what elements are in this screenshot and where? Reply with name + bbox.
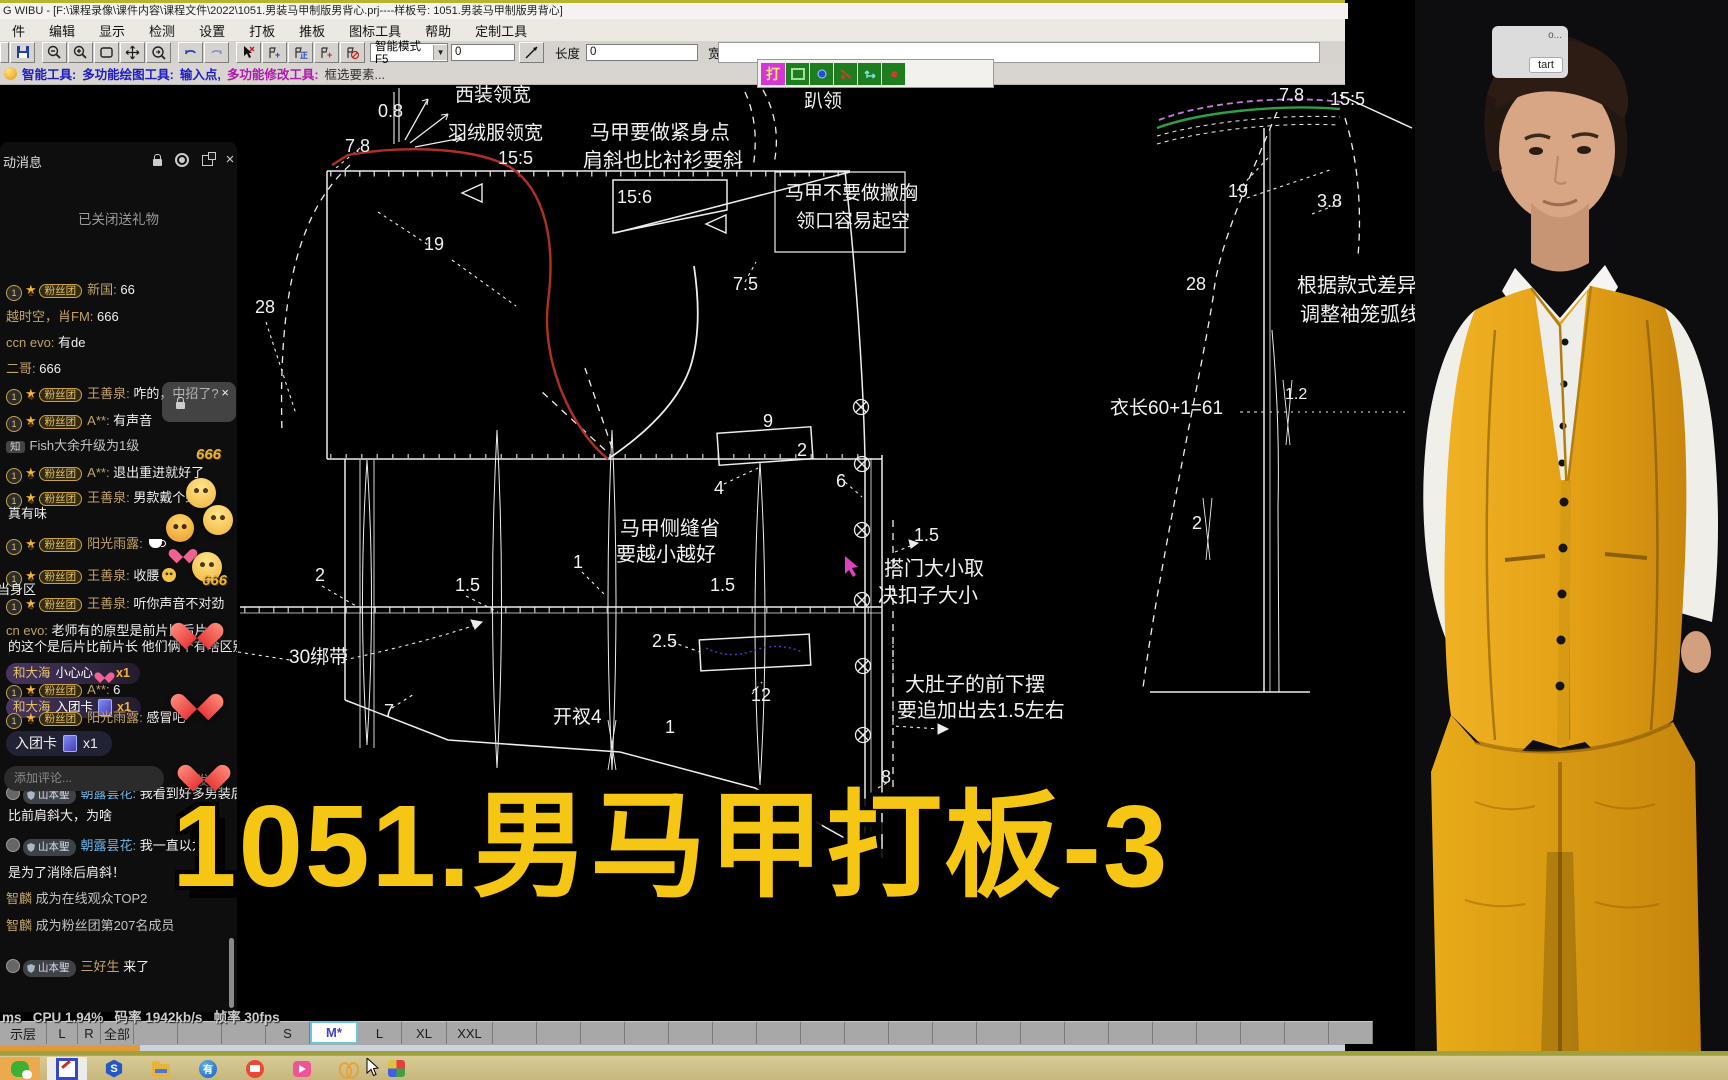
- chat-lock-popup[interactable]: ×: [162, 382, 236, 422]
- size-cell-empty[interactable]: [493, 1021, 537, 1044]
- pattern-annotation: 28: [255, 297, 275, 317]
- pattern-annotation: 1.2: [1285, 386, 1307, 403]
- floating-reaction: 666: [202, 572, 227, 589]
- pattern-annotation: 1.5: [455, 575, 480, 595]
- menu-item-9[interactable]: 定制工具: [463, 21, 539, 40]
- chevron-down-icon[interactable]: ▼: [433, 45, 447, 60]
- pattern-solid-lines: [240, 88, 1412, 858]
- buttonhole-marker: [855, 593, 870, 608]
- pattern-annotation: 9: [763, 411, 773, 431]
- menu-item-3[interactable]: 检测: [137, 21, 187, 40]
- pattern-annotation: 羽绒服领宽: [448, 122, 543, 144]
- model-viewport: [1355, 0, 1728, 1055]
- correct-tool[interactable]: 正: [288, 42, 313, 63]
- chat-header-title: 动消息: [3, 152, 42, 171]
- save-button[interactable]: [10, 42, 35, 63]
- gear-icon[interactable]: [174, 152, 190, 168]
- pattern-annotation: 6: [836, 471, 846, 491]
- pinwheel-icon[interactable]: [376, 1057, 416, 1080]
- pattern-annotation: 要越小越好: [616, 543, 716, 566]
- chat-message-continuation: 真有味: [8, 505, 47, 522]
- redo-button[interactable]: [204, 42, 229, 63]
- pattern-annotation: 马甲侧缝省: [620, 517, 720, 540]
- pattern-annotation: 19: [424, 234, 444, 254]
- floating-mini-toolbar: 打: [757, 59, 994, 88]
- buttonhole-marker: [856, 659, 871, 674]
- floating-reaction: [203, 505, 233, 535]
- buttonhole-marker: [854, 400, 869, 415]
- svg-text:+: +: [275, 50, 280, 60]
- size-cell-L[interactable]: L: [358, 1021, 402, 1044]
- close-icon[interactable]: ×: [222, 152, 237, 168]
- size-cell-empty[interactable]: [1109, 1021, 1153, 1044]
- screen-root: 0.8西装领宽羽绒服领宽7.815:5马甲要做紧身点肩斜也比衬衫要斜15:6趴领…: [0, 0, 1728, 1080]
- menu-item-1[interactable]: 编辑: [37, 21, 87, 40]
- capture-mini-panel: o... tart: [1492, 26, 1568, 78]
- prompt-seg1: 智能工具:: [22, 64, 76, 83]
- size-cell-empty[interactable]: [889, 1021, 933, 1044]
- chat-message: 1★5粉丝团阳光雨露: 感冒吧: [6, 709, 185, 729]
- buttonhole-marker: [855, 523, 870, 538]
- chat-message: 1★5粉丝团A**: 退出重进就好了: [6, 464, 204, 484]
- menu-item-6[interactable]: 推板: [287, 21, 337, 40]
- floating-reaction: [166, 514, 194, 542]
- pattern-make-button[interactable]: 打: [761, 63, 785, 85]
- mouse-cursor: [366, 1058, 382, 1078]
- size-cell-empty[interactable]: [1285, 1021, 1329, 1044]
- pattern-leader-lines: [238, 148, 1344, 788]
- status-prompt-bar: 智能工具: 多功能绘图工具: 输入点, 多功能修改工具: 框选要素...: [0, 63, 1345, 85]
- pattern-annotation: 决扣子大小: [878, 584, 978, 607]
- fill-tool-button[interactable]: [882, 63, 905, 85]
- zoom-frame-button[interactable]: [94, 42, 119, 63]
- point-tool-button[interactable]: [810, 63, 833, 85]
- coordinate-input[interactable]: [451, 44, 515, 61]
- pattern-annotation: 3.8: [1317, 191, 1342, 211]
- length-label: 长度: [555, 43, 580, 62]
- pattern-annotation: 15:5: [498, 148, 533, 168]
- size-cell-empty[interactable]: [801, 1021, 845, 1044]
- recorder-icon[interactable]: [235, 1057, 275, 1080]
- pattern-annotation: 28: [1186, 274, 1206, 294]
- butterfly-icon[interactable]: [329, 1057, 369, 1080]
- menu-item-4[interactable]: 设置: [187, 21, 237, 40]
- size-cell-XXL[interactable]: XXL: [447, 1021, 493, 1044]
- cut-edge-button[interactable]: [0, 42, 9, 63]
- youdao-icon[interactable]: 有: [188, 1057, 228, 1080]
- pattern-annotation: 1.5: [914, 525, 939, 545]
- pattern-annotation: 7.8: [345, 136, 370, 156]
- chat-message: 1★5粉丝团阳光雨露:: [6, 535, 162, 555]
- gift-closed-notice: 已关闭送礼物: [0, 211, 237, 228]
- tip-ball-icon: [4, 67, 17, 80]
- delete-point-tool[interactable]: [340, 42, 365, 63]
- size-cell-empty[interactable]: [1021, 1021, 1065, 1044]
- buttonhole-marker: [856, 728, 871, 743]
- button-markers: [854, 400, 871, 743]
- pattern-annotation: 2: [1192, 513, 1202, 533]
- s-hexagon-icon[interactable]: S: [94, 1057, 134, 1080]
- pattern-annotation: 2: [797, 440, 807, 460]
- size-cell-empty[interactable]: [713, 1021, 757, 1044]
- size-cell-empty[interactable]: [845, 1021, 889, 1044]
- chat-message: 越时空，肖FM: 666: [6, 308, 119, 325]
- pattern-annotation: 30绑带: [289, 646, 348, 668]
- undo-button[interactable]: [178, 42, 203, 63]
- capture-text: o...: [1548, 30, 1562, 41]
- pattern-annotation: 领口容易起空: [796, 210, 910, 232]
- lock-icon: [176, 402, 185, 409]
- point-break-tool[interactable]: +: [262, 42, 287, 63]
- chat-message: 1★5粉丝团A**: 有声音: [6, 412, 152, 432]
- pattern-annotation: 马甲要做紧身点: [590, 121, 730, 144]
- floating-reaction: [181, 612, 213, 641]
- close-icon[interactable]: ×: [221, 385, 229, 400]
- add-point-tool[interactable]: +: [314, 42, 339, 63]
- buttonhole-marker: [855, 457, 870, 472]
- size-cell-empty[interactable]: [625, 1021, 669, 1044]
- pocket-blue-dots: [706, 646, 802, 654]
- svg-text:正: 正: [300, 51, 308, 60]
- taskbar: S有: [0, 1055, 1728, 1080]
- stream-stats: ms CPU 1.94% 码率 1942kb/s 帧率 30fps: [2, 1006, 280, 1026]
- popout-icon[interactable]: [199, 152, 215, 168]
- chat-message-continuation: 比前肩斜大，为啥: [8, 807, 112, 824]
- comment-input[interactable]: 添加评论...: [4, 766, 164, 791]
- menu-bar: 件编辑显示检测设置打板推板图标工具帮助定制工具: [0, 19, 1345, 41]
- pattern-arrowheads: [471, 540, 948, 734]
- size-cell-empty[interactable]: [1329, 1021, 1373, 1044]
- window-title: G WIBU - [F:\课程录像\课件内容\课程文件\2022\1051.男装…: [3, 5, 563, 17]
- line-tool-button[interactable]: [519, 42, 544, 63]
- chat-message: 1★2粉丝团新国: 66: [6, 281, 135, 301]
- pattern-annotation: 2.5: [652, 631, 677, 651]
- pattern-annotation: 大肚子的前下摆: [905, 673, 1045, 696]
- floating-reaction: [174, 543, 192, 559]
- zoom-out-button[interactable]: [42, 42, 67, 63]
- pattern-annotation: 12: [751, 685, 771, 705]
- pattern-annotation: 2: [315, 565, 325, 585]
- size-cell-empty[interactable]: [1241, 1021, 1285, 1044]
- paint-app-icon[interactable]: [47, 1057, 87, 1080]
- pattern-annotation: 19: [1228, 181, 1248, 201]
- floating-reaction: [186, 478, 216, 508]
- pattern-annotation: 1.5: [710, 575, 735, 595]
- annotation-layer: 0.8西装领宽羽绒服领宽7.815:5马甲要做紧身点肩斜也比衬衫要斜15:6趴领…: [255, 84, 1420, 787]
- system-message: 智麟 成为粉丝团第207名成员: [6, 917, 174, 934]
- video-caption: 1051.男马甲打板-3: [172, 752, 1169, 920]
- pattern-annotation: 1: [573, 552, 583, 572]
- pattern-annotation: 开衩4: [553, 706, 602, 728]
- pattern-annotation: 搭门大小取: [884, 557, 984, 580]
- video-camera-icon[interactable]: [282, 1057, 322, 1080]
- start-button[interactable]: tart: [1529, 57, 1563, 73]
- chat-message: 二哥: 666: [6, 360, 61, 377]
- wechat-icon[interactable]: [0, 1057, 40, 1080]
- size-cell-empty[interactable]: [977, 1021, 1021, 1044]
- size-cell-empty[interactable]: [581, 1021, 625, 1044]
- size-cell-empty[interactable]: [1065, 1021, 1109, 1044]
- red-neckline-curve: [332, 149, 608, 459]
- menu-item-8[interactable]: 帮助: [413, 21, 463, 40]
- green-armhole-curve: [1157, 108, 1340, 128]
- chat-scrollbar[interactable]: [229, 938, 234, 1008]
- pattern-annotation: 马甲不要做撇胸: [785, 182, 918, 204]
- size-cell-XL[interactable]: XL: [402, 1021, 447, 1044]
- gift-banner-large: 入团卡x1: [6, 731, 112, 756]
- size-cell-empty[interactable]: [933, 1021, 977, 1044]
- rect-tool-button[interactable]: [786, 63, 809, 85]
- prompt-seg5: 框选要素...: [325, 64, 385, 83]
- window-titlebar: G WIBU - [F:\课程录像\课件内容\课程文件\2022\1051.男装…: [0, 3, 1348, 19]
- pattern-annotation: 4: [714, 478, 724, 498]
- model-figure: [1355, 0, 1728, 1055]
- chat-notice: 知Fish大余升级为1级: [6, 437, 139, 456]
- menu-item-7[interactable]: 图标工具: [337, 21, 413, 40]
- pattern-dashed-lines: [282, 90, 1360, 788]
- chat-header: 动消息 ×: [0, 150, 237, 170]
- pan-button[interactable]: [120, 42, 145, 63]
- pattern-annotation: 7.5: [733, 274, 758, 294]
- select-element-button[interactable]: [236, 42, 261, 63]
- prompt-seg3: 输入点,: [180, 64, 221, 83]
- pattern-annotation: 1: [665, 717, 675, 737]
- pattern-annotation: 7: [384, 701, 394, 721]
- dynamic-zoom-button[interactable]: [146, 42, 171, 63]
- smart-mode-value: 智能模式F5: [375, 38, 433, 66]
- length-input[interactable]: [586, 44, 698, 61]
- menu-item-2[interactable]: 显示: [87, 21, 137, 40]
- chat-message-continuation: 是为了消除后肩斜！: [8, 864, 125, 881]
- neck-guide-dashes: [1157, 116, 1340, 144]
- system-message: 智麟 成为在线观众TOP2: [6, 890, 147, 907]
- cad-cursor: [845, 556, 858, 577]
- size-cell-M*[interactable]: M*: [310, 1021, 358, 1044]
- pattern-annotation: 肩斜也比衬衫要斜: [583, 149, 743, 172]
- zoom-in-button[interactable]: [68, 42, 93, 63]
- move-tool-button[interactable]: [858, 63, 881, 85]
- floating-reaction: [181, 683, 213, 712]
- pattern-annotation: 15:6: [617, 187, 652, 207]
- pattern-annotation: 要追加出去1.5左右: [897, 699, 1065, 722]
- cut-tool-button[interactable]: [834, 63, 857, 85]
- chat-message: ccn evo: 有de: [6, 334, 86, 351]
- svg-text:+: +: [327, 50, 332, 60]
- prompt-seg2: 多功能绘图工具:: [82, 64, 174, 83]
- size-cell-empty[interactable]: [669, 1021, 713, 1044]
- lock-icon[interactable]: [149, 152, 165, 168]
- pattern-annotation: 0.8: [378, 101, 403, 121]
- prompt-seg4: 多功能修改工具:: [227, 64, 319, 83]
- pattern-annotation: 衣长60+1=61: [1110, 397, 1223, 419]
- menu-item-5[interactable]: 打板: [237, 21, 287, 40]
- menu-item-0[interactable]: 件: [0, 21, 37, 40]
- size-cell-empty[interactable]: [1197, 1021, 1241, 1044]
- floating-reaction: 666: [196, 446, 221, 463]
- file-explorer-icon[interactable]: [141, 1057, 181, 1080]
- size-cell-empty[interactable]: [757, 1021, 801, 1044]
- chat-message: 山本聖三好生 来了: [6, 958, 149, 977]
- smart-mode-select[interactable]: 智能模式F5 ▼: [370, 43, 448, 62]
- size-cell-empty[interactable]: [1153, 1021, 1197, 1044]
- size-cell-empty[interactable]: [537, 1021, 581, 1044]
